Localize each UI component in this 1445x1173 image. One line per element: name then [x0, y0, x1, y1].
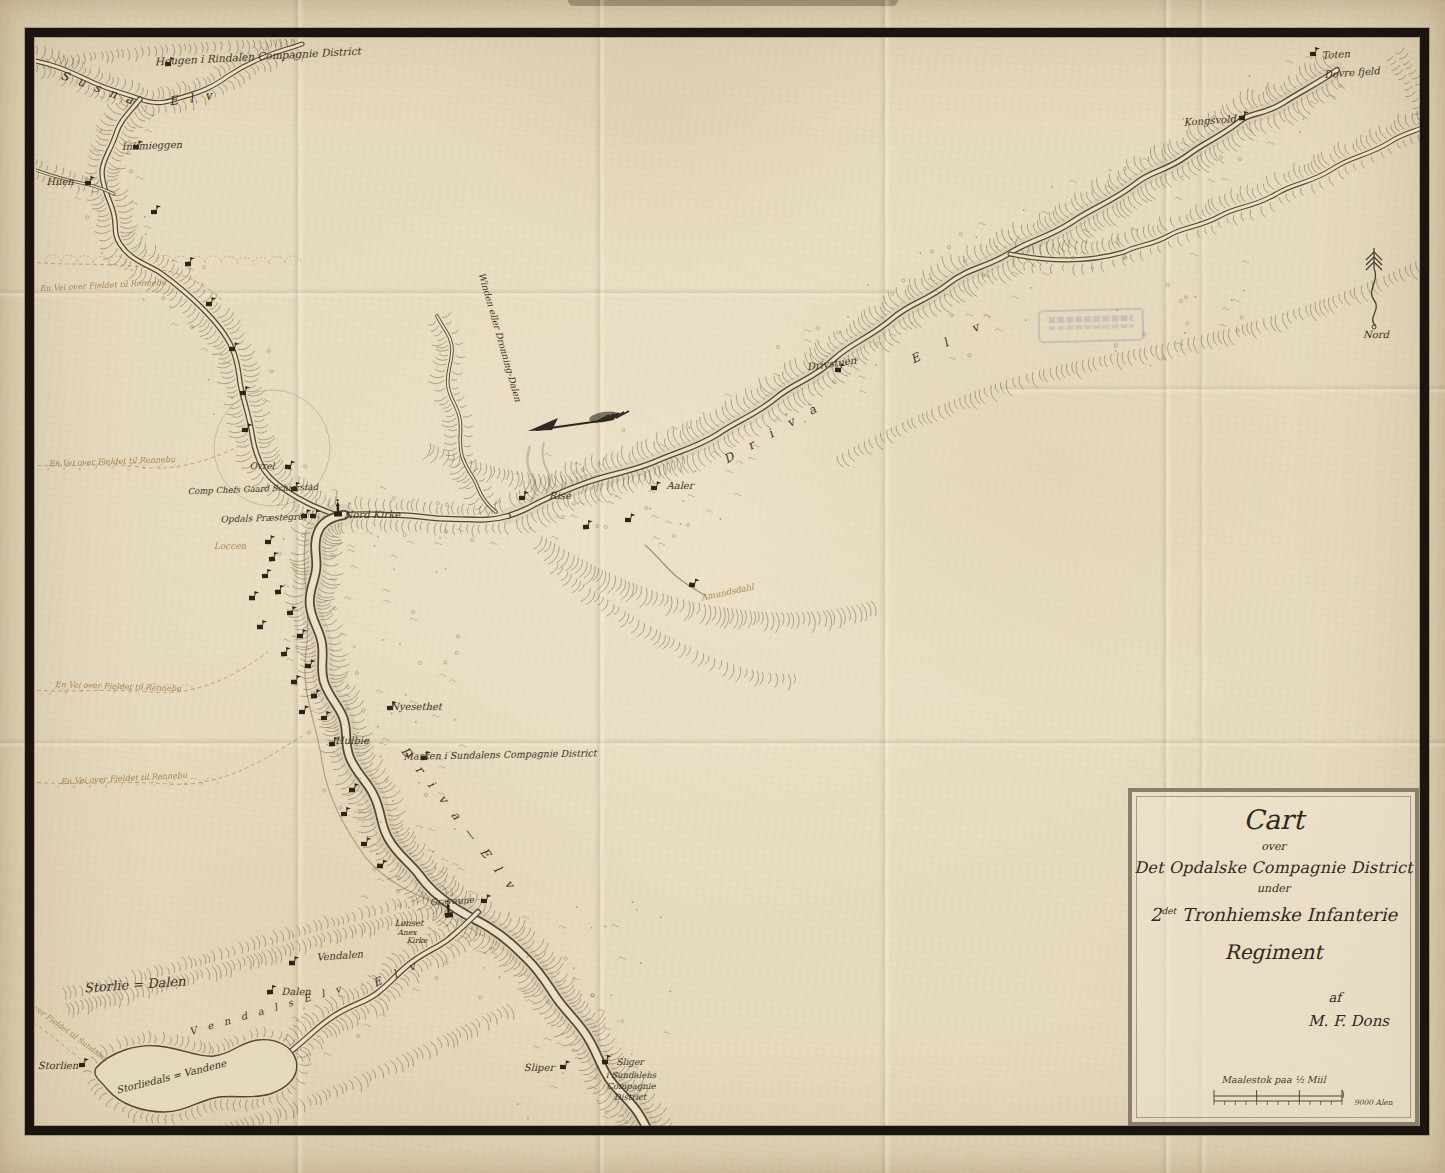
cartouche-word-over: over — [1132, 840, 1415, 853]
stamp-text-line — [1049, 315, 1133, 323]
cartouche-regiment-line: 2det Tronhiemske Infanterie — [1132, 904, 1415, 925]
cartouche-word-af: af — [1328, 990, 1341, 1005]
map-sheet: Hougen i Rindalen Compagnie DistrictS u … — [0, 0, 1445, 1173]
title-cartouche: Cart over Det Opdalske Compagnie Distric… — [1128, 788, 1419, 1126]
scale-bar — [1210, 1088, 1370, 1110]
cartouche-author: M. F. Dons — [1308, 1012, 1389, 1030]
scale-caption: Maalestok paa ½ Miil — [1132, 1074, 1415, 1085]
cartouche-district-line: Det Opdalske Compagnie District — [1132, 858, 1415, 877]
archive-stamp — [1038, 308, 1145, 344]
cartouche-title: Cart — [1132, 804, 1415, 835]
scale-unit-label: 9000 Alen — [1354, 1098, 1393, 1107]
stamp-text-line — [1049, 324, 1133, 330]
cartouche-word-under: under — [1132, 882, 1415, 895]
cartouche-regiment-word: Regiment — [1132, 940, 1415, 964]
